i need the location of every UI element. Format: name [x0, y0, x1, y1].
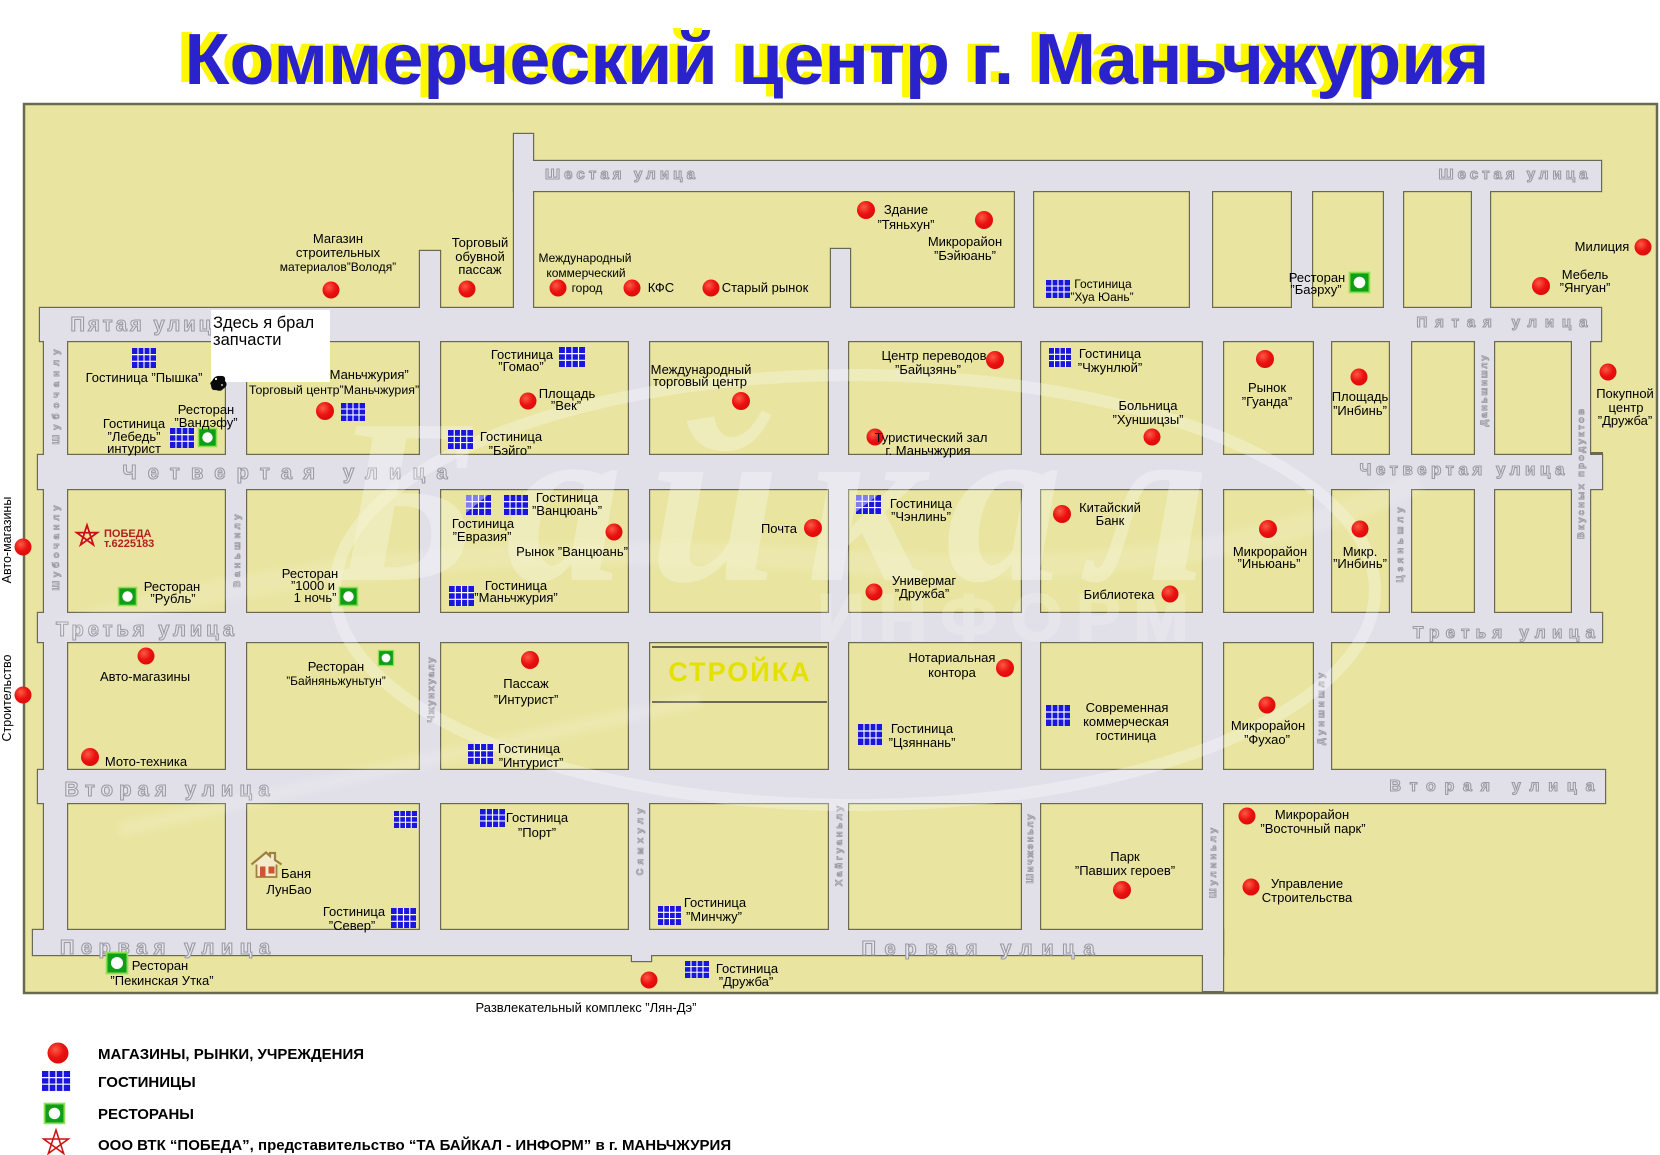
- svg-text:”Дружба”: ”Дружба”: [719, 974, 773, 989]
- svg-text:”Иньюань”: ”Иньюань”: [1238, 556, 1301, 571]
- svg-text:”Маньчжурия”: ”Маньчжурия”: [474, 590, 557, 605]
- svg-text:”Янгуан”: ”Янгуан”: [1560, 280, 1611, 295]
- svg-text:Рынок ”Ванцюань”: Рынок ”Ванцюань”: [516, 544, 628, 559]
- svg-text:”Вандэфу”: ”Вандэфу”: [174, 415, 237, 430]
- svg-text:Строительства: Строительства: [1262, 890, 1353, 905]
- svg-text:Микрорайон: Микрорайон: [1231, 718, 1305, 733]
- svg-text:РЕСТОРАНЫ: РЕСТОРАНЫ: [98, 1106, 194, 1123]
- svg-text:Гостиница: Гостиница: [684, 895, 747, 910]
- svg-text:Больница: Больница: [1119, 398, 1179, 413]
- svg-text:Микрорайон: Микрорайон: [1275, 807, 1349, 822]
- svg-text:”Север”: ”Север”: [329, 918, 376, 933]
- svg-text:”Гомао”: ”Гомао”: [498, 359, 543, 374]
- svg-text:контора: контора: [928, 665, 977, 680]
- svg-text:Ресторан: Ресторан: [308, 659, 365, 674]
- svg-text:Даньшишлу: Даньшишлу: [1479, 355, 1490, 427]
- svg-text:Здесь я брал: Здесь я брал: [213, 314, 314, 332]
- svg-text:запчасти: запчасти: [213, 331, 281, 349]
- svg-text:Пятая улица: Пятая улица: [1417, 314, 1589, 331]
- svg-text:”Век”: ”Век”: [551, 398, 581, 413]
- svg-text:Шичжэньлу: Шичжэньлу: [1025, 814, 1036, 884]
- svg-text:Шестая улица: Шестая улица: [1439, 166, 1589, 183]
- svg-text:Шубочанлу: Шубочанлу: [51, 349, 62, 445]
- svg-text:Почта: Почта: [761, 521, 798, 536]
- svg-text:”Евразия”: ”Евразия”: [453, 529, 512, 544]
- svg-text:интурист: интурист: [107, 441, 161, 456]
- svg-text:Хайгуаньлу: Хайгуаньлу: [834, 805, 845, 886]
- svg-text:”Фухао”: ”Фухао”: [1244, 732, 1290, 747]
- svg-text:”Тяньхун”: ”Тяньхун”: [877, 217, 934, 232]
- svg-text:ГОСТИНИЦЫ: ГОСТИНИЦЫ: [98, 1074, 196, 1091]
- svg-text:Развлекательный комплекс ”Лян-: Развлекательный комплекс ”Лян-Дэ”: [476, 1000, 697, 1015]
- svg-text:Четвертая улица: Четвертая улица: [123, 462, 449, 484]
- svg-text:”Чжунлюй”: ”Чжунлюй”: [1078, 360, 1142, 375]
- svg-text:КФС: КФС: [648, 280, 674, 295]
- svg-text:Библиотека: Библиотека: [1084, 587, 1155, 602]
- svg-text:ООО ВТК “ПОБЕДА”, представител: ООО ВТК “ПОБЕДА”, представительство “ТА …: [98, 1136, 731, 1154]
- svg-text:”Дружба”: ”Дружба”: [895, 586, 949, 601]
- svg-text:т.6225183: т.6225183: [104, 538, 154, 550]
- svg-text:Рынок: Рынок: [1248, 380, 1286, 395]
- svg-text:Гостиница: Гостиница: [891, 721, 954, 736]
- svg-text:Центр переводов: Центр переводов: [882, 348, 987, 363]
- svg-text:”Порт”: ”Порт”: [518, 825, 556, 840]
- svg-text:строительных: строительных: [296, 245, 381, 260]
- svg-text:Магазин: Магазин: [313, 231, 363, 246]
- svg-text:Авто-магазины: Авто-магазины: [100, 669, 190, 684]
- svg-text:Микрорайон: Микрорайон: [928, 234, 1002, 249]
- svg-text:Покупной: Покупной: [1596, 386, 1654, 401]
- svg-text:”Инбинь”: ”Инбинь”: [1333, 556, 1387, 571]
- svg-text:Шестая улица: Шестая улица: [545, 166, 696, 183]
- svg-text:Нотариальная: Нотариальная: [909, 650, 996, 665]
- svg-text:СТРОЙКА: СТРОЙКА: [668, 656, 811, 687]
- svg-text:Гостиница ”Пышка”: Гостиница ”Пышка”: [86, 370, 203, 385]
- svg-text:Четвертая улица: Четвертая улица: [1360, 460, 1566, 479]
- svg-text:г. Маньчжурия: г. Маньчжурия: [885, 443, 970, 458]
- svg-text:Площадь: Площадь: [1332, 389, 1389, 404]
- svg-text:”Хуншицзы”: ”Хуншицзы”: [1112, 412, 1183, 427]
- svg-text:”Бэйюань”: ”Бэйюань”: [934, 248, 996, 263]
- svg-text:”Рубль”: ”Рубль”: [150, 591, 195, 606]
- svg-text:Управление: Управление: [1271, 876, 1343, 891]
- svg-text:Вкусных продуктов: Вкусных продуктов: [1576, 409, 1587, 539]
- svg-text:Торговый центр”Маньчжурия”: Торговый центр”Маньчжурия”: [249, 383, 419, 397]
- svg-text:торговый центр: торговый центр: [653, 374, 747, 389]
- svg-text:Пассаж: Пассаж: [503, 676, 549, 691]
- svg-text:Гостиница: Гостиница: [1074, 277, 1132, 291]
- svg-text:”Чэнлинь”: ”Чэнлинь”: [891, 509, 951, 524]
- svg-text:Банк: Банк: [1096, 513, 1125, 528]
- svg-text:”Маньчжурия”: ”Маньчжурия”: [325, 367, 408, 382]
- svg-text:Гостиница: Гостиница: [323, 904, 386, 919]
- svg-text:Торговый: Торговый: [452, 235, 509, 250]
- svg-text:”Бэйго”: ”Бэйго”: [489, 443, 532, 458]
- svg-text:”Восточный парк”: ”Восточный парк”: [1260, 821, 1365, 836]
- svg-text:”Цзяннань”: ”Цзяннань”: [889, 735, 956, 750]
- svg-text:Мото-техника: Мото-техника: [105, 754, 188, 769]
- svg-text:”Ванцюань”: ”Ванцюань”: [532, 503, 602, 518]
- svg-text:”Минчжу”: ”Минчжу”: [686, 909, 742, 924]
- svg-text:коммерческая: коммерческая: [1083, 714, 1169, 729]
- svg-text:Ваньшилу: Ваньшилу: [232, 514, 243, 588]
- svg-text:”Хуа Юань”: ”Хуа Юань”: [1070, 290, 1133, 304]
- svg-text:”Интурист”: ”Интурист”: [499, 755, 564, 770]
- svg-text:пассаж: пассаж: [458, 262, 501, 277]
- svg-text:”Дружба”: ”Дружба”: [1598, 413, 1652, 428]
- svg-text:Чжунхуалу: Чжунхуалу: [426, 657, 437, 723]
- svg-text:”Инбинь”: ”Инбинь”: [1333, 403, 1387, 418]
- svg-text:Здание: Здание: [884, 202, 928, 217]
- svg-text:Баня: Баня: [281, 866, 311, 881]
- svg-text:гостиница: гостиница: [1096, 728, 1157, 743]
- svg-text:МАГАЗИНЫ, РЫНКИ, УЧРЕЖДЕНИЯ: МАГАЗИНЫ, РЫНКИ, УЧРЕЖДЕНИЯ: [98, 1046, 364, 1063]
- svg-text:”Гуанда”: ”Гуанда”: [1242, 394, 1292, 409]
- svg-text:”Интурист”: ”Интурист”: [494, 692, 559, 707]
- svg-text:Международный: Международный: [538, 251, 631, 265]
- svg-text:Пятая улица: Пятая улица: [71, 314, 227, 336]
- svg-text:Гостиница: Гостиница: [498, 741, 561, 756]
- svg-text:Парк: Парк: [1110, 849, 1140, 864]
- svg-text:ЛунБао: ЛунБао: [266, 882, 311, 897]
- svg-text:материалов”Володя”: материалов”Володя”: [280, 260, 396, 274]
- svg-text:Гостиница: Гостиница: [506, 810, 569, 825]
- svg-text:Авто-магазины: Авто-магазины: [0, 497, 14, 584]
- svg-text:1 ночь”: 1 ночь”: [294, 590, 337, 605]
- svg-text:”Павших героев”: ”Павших героев”: [1075, 863, 1175, 878]
- svg-text:Гостиница: Гостиница: [1079, 346, 1142, 361]
- svg-text:”Байцзянь”: ”Байцзянь”: [895, 362, 961, 377]
- svg-text:Строительство: Строительство: [0, 654, 14, 741]
- svg-text:Шубочанлу: Шубочанлу: [51, 505, 62, 591]
- svg-text:Ресторан: Ресторан: [132, 958, 189, 973]
- svg-text:”Байняньжуньтун”: ”Байняньжуньтун”: [286, 674, 386, 688]
- svg-text:коммерческий: коммерческий: [546, 266, 625, 280]
- svg-text:”Баэрху”: ”Баэрху”: [1290, 282, 1341, 297]
- svg-text:Милиция: Милиция: [1575, 239, 1630, 254]
- svg-text:Гостиница: Гостиница: [480, 429, 543, 444]
- svg-text:Старый рынок: Старый рынок: [722, 280, 809, 295]
- svg-text:Коммерческий центр г. Маньчжур: Коммерческий центр г. Маньчжурия: [185, 20, 1490, 100]
- svg-text:”Пекинская Утка”: ”Пекинская Утка”: [110, 973, 213, 988]
- svg-text:Современная: Современная: [1086, 700, 1169, 715]
- svg-text:город: город: [572, 281, 603, 295]
- svg-text:Цзяньшлу: Цзяньшлу: [1395, 507, 1406, 583]
